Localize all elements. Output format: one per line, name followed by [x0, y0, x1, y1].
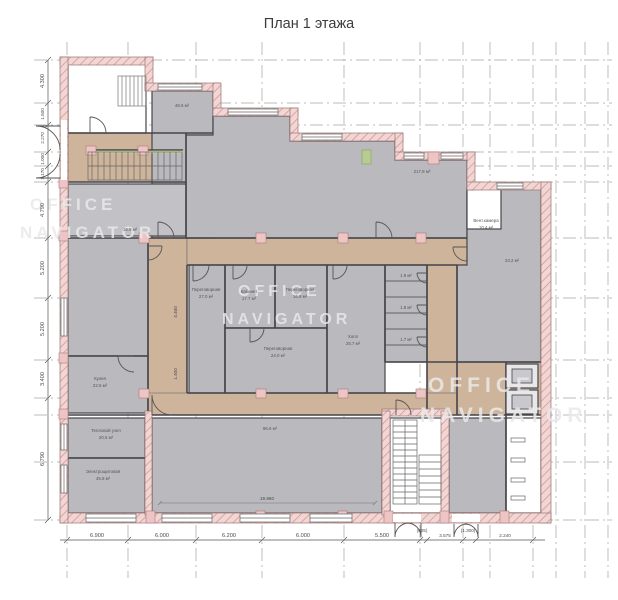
room-m4 [225, 328, 327, 393]
room-label: Кабинет [241, 289, 258, 294]
svg-text:4.790: 4.790 [40, 203, 46, 217]
inner-dim-label: 19.960 [260, 496, 274, 501]
svg-text:1.000: 1.000 [40, 153, 45, 165]
svg-text:6.200: 6.200 [222, 533, 236, 539]
room-label: 1.7 м² [400, 337, 412, 342]
room-br [449, 418, 506, 513]
svg-text:3.575: 3.575 [439, 533, 451, 538]
room-label: 16.9 м² [123, 227, 138, 232]
room-m1 [189, 265, 225, 393]
svg-text:3.400: 3.400 [40, 372, 46, 386]
room-label: 17.7 м² [242, 296, 257, 301]
room-label: Холл [348, 334, 359, 339]
watermark-1-line2: NAVIGATOR [20, 223, 155, 242]
plan-title: План 1 этажа [264, 16, 355, 32]
room-kitchen [68, 356, 148, 413]
green-pier [362, 150, 371, 164]
room-label: 1.8 м² [400, 305, 412, 310]
svg-text:1.500: 1.500 [40, 108, 45, 120]
svg-text:6.900: 6.900 [90, 533, 104, 539]
svg-text:6.000: 6.000 [155, 533, 169, 539]
room-label: Тепловой узел [91, 428, 121, 433]
room-label: 25.7 м² [346, 341, 361, 346]
room-label: 10.4 м² [479, 225, 494, 230]
svg-text:(625): (625) [417, 528, 428, 533]
left-dimension-labels: 4.300 1.500 2.270 1.000 1.170 4.790 5.20… [40, 74, 46, 466]
svg-text:1.170: 1.170 [40, 168, 45, 180]
svg-text:6.790: 6.790 [40, 452, 46, 466]
room-label: 217.8 м² [414, 169, 431, 174]
bottom-dimension-labels: 6.900 6.000 6.200 6.000 5.500 (625) 3.57… [90, 528, 511, 539]
room-wc-block [385, 265, 427, 362]
room-label: Переговорная [264, 346, 293, 351]
room-label: 23.2 м² [505, 258, 520, 263]
room-label: 20.5 м² [99, 435, 114, 440]
room-label: Переговорная [192, 287, 221, 292]
room-label: 16.8 м² [293, 294, 308, 299]
watermark-2-line2: NAVIGATOR [222, 311, 351, 328]
floor-plan-svg: План 1 этажа [0, 0, 618, 600]
room-hall [327, 265, 385, 393]
room-label: Кухня [94, 376, 106, 381]
room-label: 48.6 м² [175, 103, 190, 108]
room-label: 24.0 м² [271, 353, 286, 358]
svg-text:5.200: 5.200 [40, 322, 46, 336]
watermark-3-line1: OFFICE [428, 374, 535, 397]
room-label: 27.0 м² [199, 294, 214, 299]
svg-text:5.500: 5.500 [375, 533, 389, 539]
svg-text:5.200: 5.200 [40, 261, 46, 275]
room-label: Переговорная [286, 287, 315, 292]
room-notch [467, 189, 501, 229]
room-label: 1.9 м² [400, 273, 412, 278]
room-label: 22.5 м² [93, 383, 108, 388]
room-label: 96.6 м² [263, 426, 278, 431]
corridor-dim-1: 4.400 [173, 306, 178, 318]
room-label: Электрощитовая [86, 469, 121, 474]
room-electric [68, 458, 145, 513]
corridor-dim-2: 1.400 [173, 368, 178, 380]
svg-text:(1.300): (1.300) [461, 528, 476, 533]
room-l2 [68, 238, 148, 356]
room-label: Вент.камера [473, 218, 499, 223]
svg-text:2.240: 2.240 [499, 533, 511, 538]
svg-text:4.300: 4.300 [40, 74, 46, 88]
svg-text:6.000: 6.000 [296, 533, 310, 539]
svg-text:2.270: 2.270 [40, 132, 45, 144]
room-label: 45.8 м² [96, 476, 111, 481]
watermark-3-line2: NAVIGATOR [420, 404, 588, 427]
